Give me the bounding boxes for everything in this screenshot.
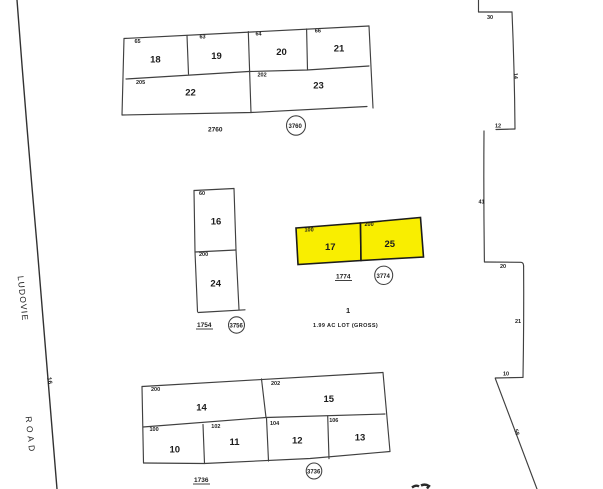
svg-text:18: 18	[150, 54, 161, 65]
svg-text:16: 16	[211, 216, 222, 227]
svg-text:100: 100	[305, 228, 314, 234]
svg-text:12: 12	[292, 436, 303, 447]
svg-text:22: 22	[185, 87, 196, 98]
svg-text:1736: 1736	[194, 477, 209, 484]
svg-text:3736: 3736	[307, 470, 321, 476]
svg-text:3756: 3756	[230, 324, 244, 330]
svg-text:63: 63	[200, 35, 206, 41]
svg-text:202: 202	[258, 73, 267, 79]
svg-text:21: 21	[515, 319, 521, 325]
svg-text:19: 19	[211, 51, 222, 62]
svg-text:20: 20	[276, 47, 287, 58]
svg-text:1754: 1754	[197, 322, 212, 329]
svg-text:11: 11	[229, 437, 240, 448]
svg-text:14: 14	[196, 402, 207, 413]
svg-text:102: 102	[211, 424, 220, 430]
svg-text:41: 41	[479, 200, 485, 206]
svg-text:3774: 3774	[377, 274, 391, 280]
svg-text:3760: 3760	[289, 124, 303, 130]
svg-text:1774: 1774	[336, 274, 351, 281]
svg-text:30: 30	[487, 15, 493, 21]
svg-text:60: 60	[199, 191, 205, 197]
svg-text:200: 200	[365, 222, 374, 228]
svg-text:10: 10	[170, 444, 181, 455]
svg-text:24: 24	[210, 278, 221, 289]
svg-text:200: 200	[151, 387, 160, 393]
svg-text:12: 12	[495, 124, 501, 130]
svg-text:66: 66	[315, 29, 321, 35]
svg-text:20: 20	[500, 264, 506, 270]
svg-text:17: 17	[325, 242, 336, 253]
svg-text:23: 23	[313, 80, 324, 91]
svg-text:1.99 AC LOT (GROSS): 1.99 AC LOT (GROSS)	[313, 323, 378, 329]
svg-text:1: 1	[346, 306, 350, 315]
svg-text:200: 200	[199, 252, 208, 258]
svg-text:202: 202	[271, 381, 280, 387]
svg-text:205: 205	[136, 80, 145, 86]
svg-text:100: 100	[150, 427, 159, 433]
svg-text:106: 106	[329, 418, 338, 424]
svg-text:64: 64	[256, 32, 263, 38]
svg-text:65: 65	[135, 39, 141, 45]
svg-text:21: 21	[334, 43, 345, 54]
svg-text:13: 13	[355, 432, 366, 443]
svg-text:2760: 2760	[208, 127, 223, 134]
svg-text:10: 10	[503, 372, 509, 378]
svg-text:15: 15	[324, 394, 335, 405]
svg-text:104: 104	[270, 421, 280, 427]
svg-text:25: 25	[385, 239, 396, 250]
